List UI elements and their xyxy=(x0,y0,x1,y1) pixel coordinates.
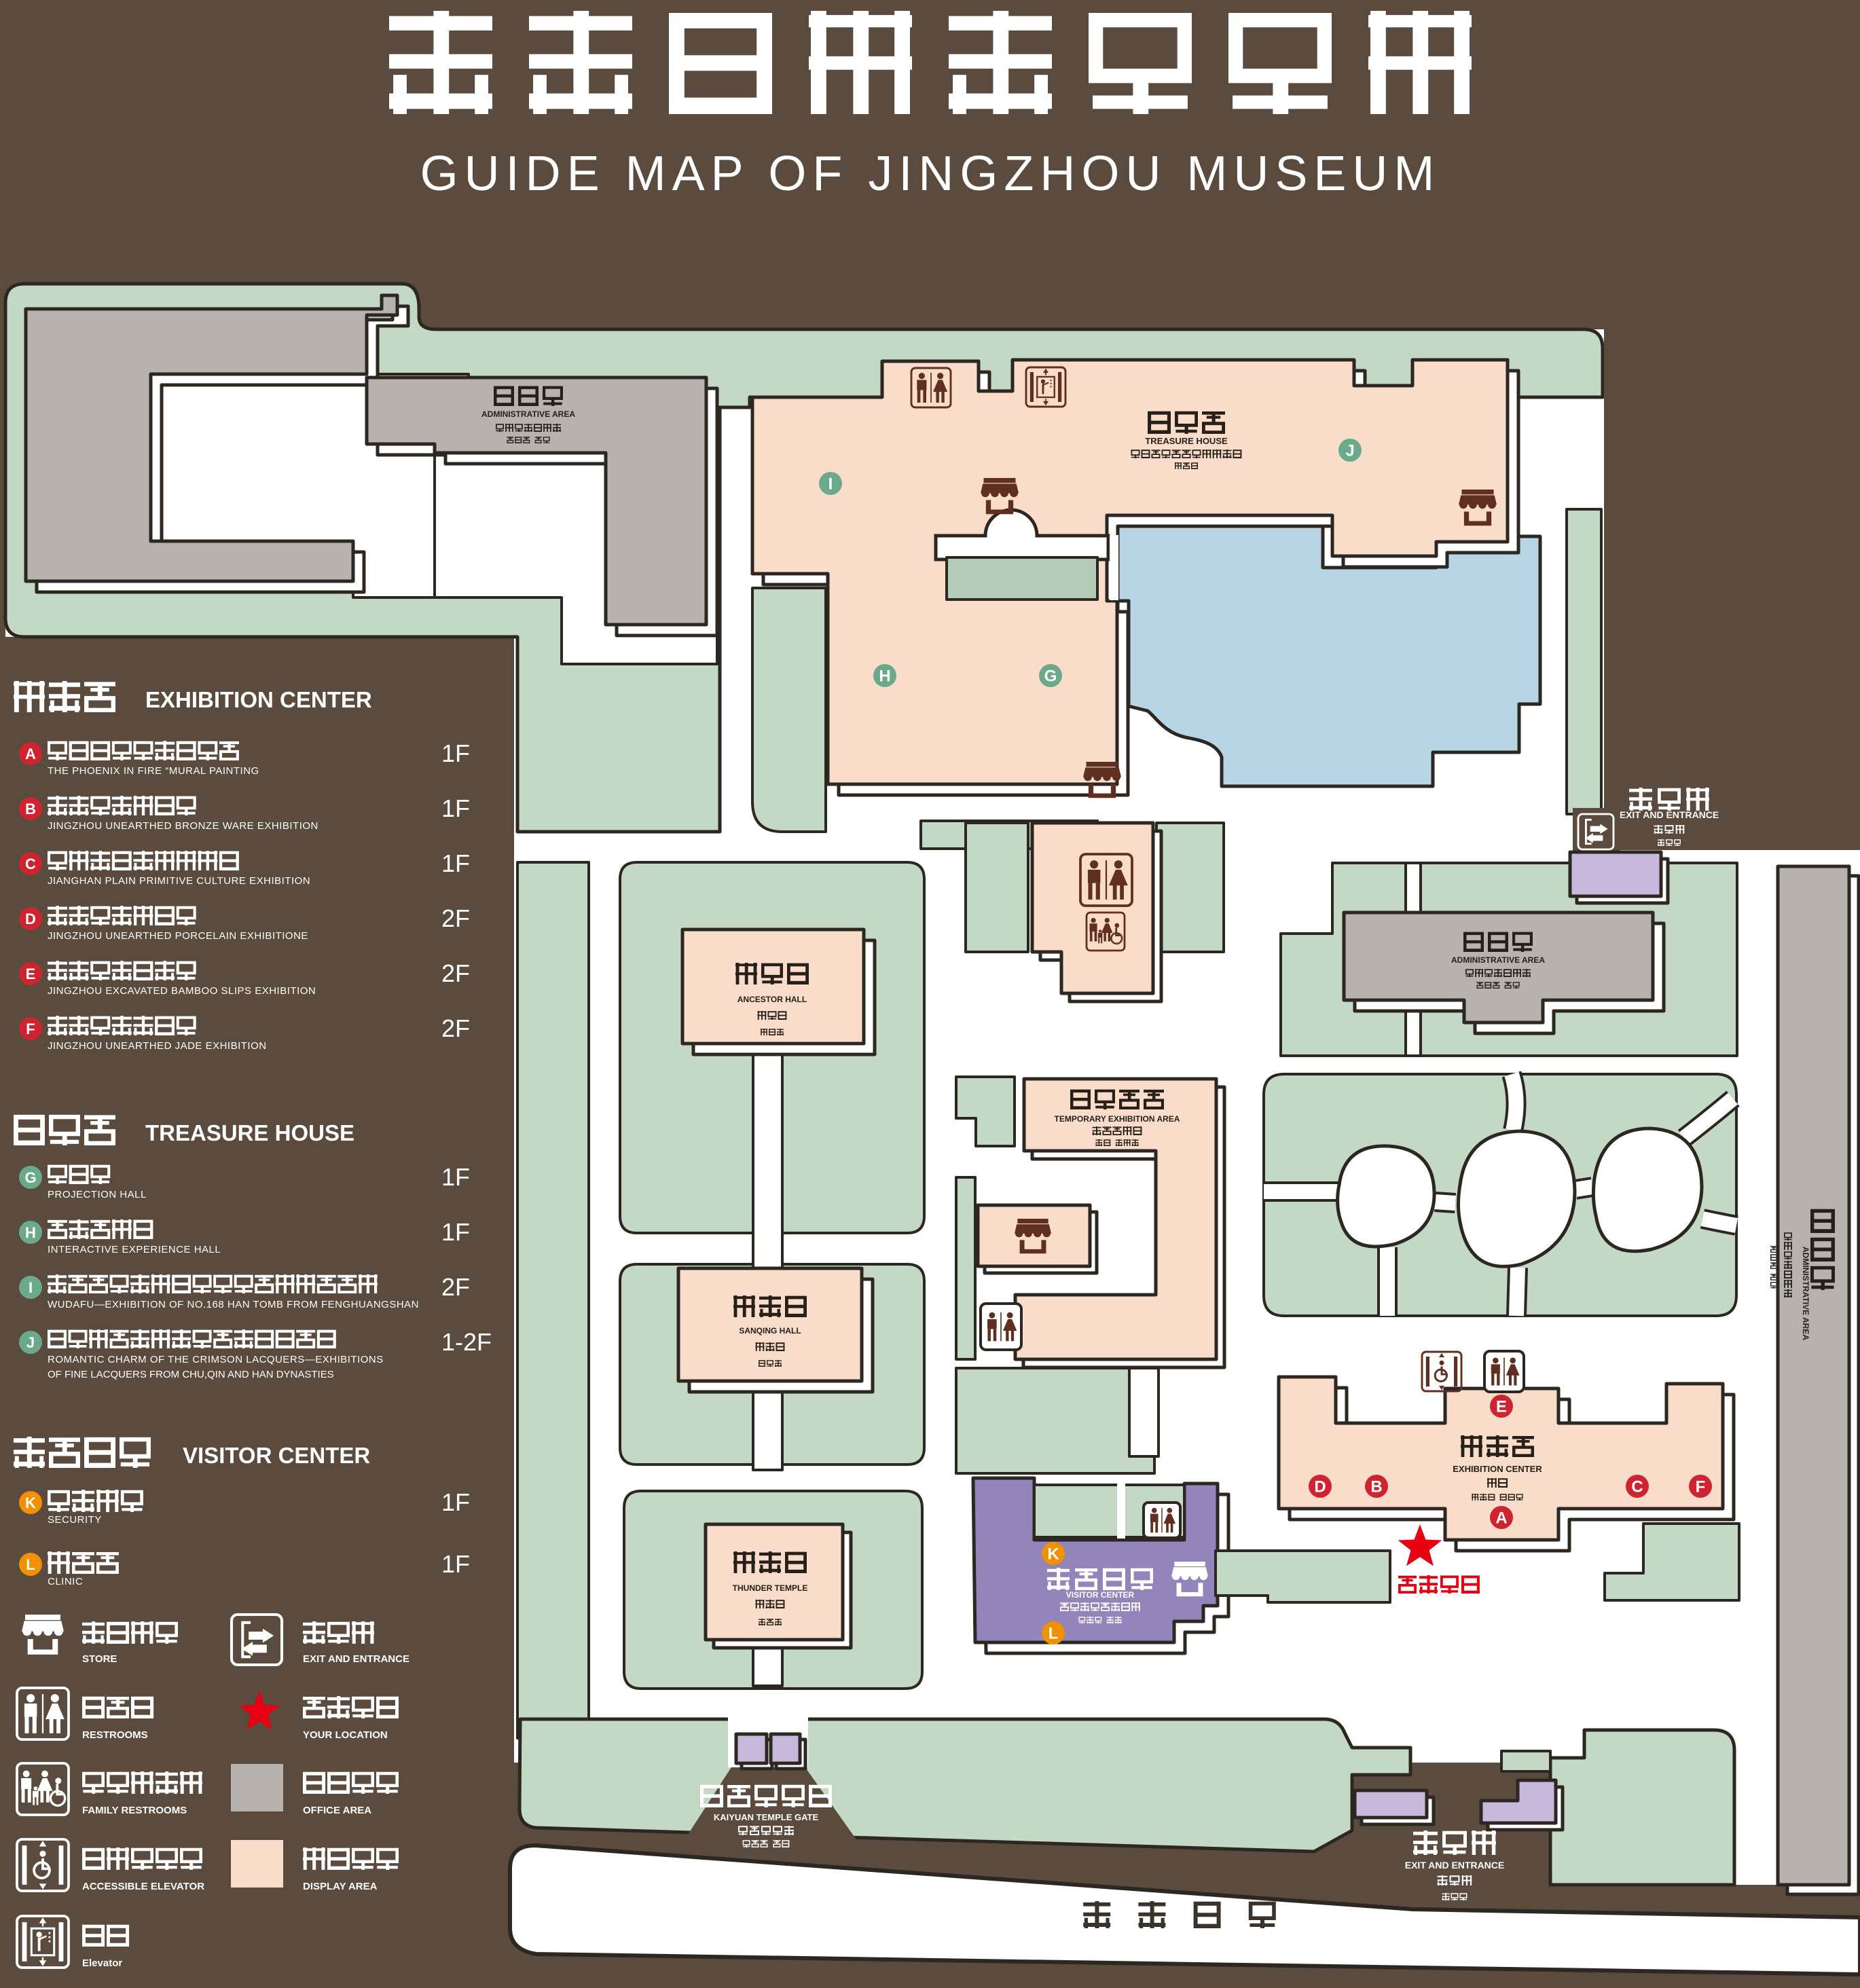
svg-text:1F: 1F xyxy=(441,1163,470,1191)
svg-text:H: H xyxy=(25,1224,36,1241)
svg-text:JINGZHOU EXCAVATED BAMBOO SLIP: JINGZHOU EXCAVATED BAMBOO SLIPS EXHIBITI… xyxy=(48,985,316,997)
svg-text:THUNDER TEMPLE: THUNDER TEMPLE xyxy=(733,1583,808,1593)
svg-text:JINGZHOU UNEARTHED BRONZE WARE: JINGZHOU UNEARTHED BRONZE WARE EXHIBITIO… xyxy=(48,820,318,832)
svg-text:1F: 1F xyxy=(441,794,470,822)
svg-text:J: J xyxy=(26,1334,35,1351)
svg-text:TREASURE HOUSE: TREASURE HOUSE xyxy=(1145,436,1228,446)
svg-text:D: D xyxy=(25,910,36,927)
svg-text:1F: 1F xyxy=(441,1218,470,1246)
svg-text:1F: 1F xyxy=(441,739,470,767)
svg-text:I: I xyxy=(828,475,833,494)
svg-text:DISPLAY AREA: DISPLAY AREA xyxy=(303,1881,378,1892)
svg-text:G: G xyxy=(24,1169,36,1186)
svg-text:EXIT AND ENTRANCE: EXIT AND ENTRANCE xyxy=(303,1653,409,1665)
svg-text:VISITOR CENTER: VISITOR CENTER xyxy=(183,1443,370,1468)
svg-text:E: E xyxy=(1496,1398,1507,1416)
svg-text:SANQING HALL: SANQING HALL xyxy=(739,1326,801,1336)
svg-text:F: F xyxy=(26,1020,35,1037)
svg-text:L: L xyxy=(1048,1625,1059,1643)
svg-text:ADMINISTRATIVE AREA: ADMINISTRATIVE AREA xyxy=(481,409,575,419)
svg-text:2F: 2F xyxy=(441,1014,470,1042)
svg-text:WUDAFU—EXHIBITION OF NO.168 HA: WUDAFU—EXHIBITION OF NO.168 HAN TOMB FRO… xyxy=(48,1299,419,1310)
svg-text:F: F xyxy=(1696,1478,1706,1496)
svg-text:H: H xyxy=(879,667,890,686)
svg-text:EXHIBITION CENTER: EXHIBITION CENTER xyxy=(145,687,372,712)
svg-text:ANCESTOR HALL: ANCESTOR HALL xyxy=(737,995,807,1004)
svg-text:RESTROOMS: RESTROOMS xyxy=(82,1729,148,1741)
svg-text:K: K xyxy=(25,1494,36,1511)
svg-text:K: K xyxy=(1047,1545,1059,1564)
svg-text:THE PHOENIX IN FIRE “MURAL PAI: THE PHOENIX IN FIRE “MURAL PAINTING xyxy=(48,765,259,777)
svg-text:OF FINE LACQUERS FROM CHU,QIN: OF FINE LACQUERS FROM CHU,QIN AND HAN DY… xyxy=(48,1369,334,1380)
svg-text:2F: 2F xyxy=(441,904,470,932)
svg-text:GUIDE MAP OF JINGZHOU MUSEUM: GUIDE MAP OF JINGZHOU MUSEUM xyxy=(420,147,1441,201)
svg-text:ADMINISTRATIVE AREA: ADMINISTRATIVE AREA xyxy=(1451,955,1545,965)
svg-text:1-2F: 1-2F xyxy=(441,1328,492,1356)
svg-text:STORE: STORE xyxy=(82,1653,117,1665)
svg-text:JIANGHAN PLAIN PRIMITIVE CULTU: JIANGHAN PLAIN PRIMITIVE CULTURE EXHIBIT… xyxy=(48,875,310,887)
svg-text:INTERACTIVE EXPERIENCE HALL: INTERACTIVE EXPERIENCE HALL xyxy=(48,1244,221,1255)
svg-text:OFFICE AREA: OFFICE AREA xyxy=(303,1805,371,1816)
svg-text:C: C xyxy=(1631,1478,1643,1496)
svg-text:1F: 1F xyxy=(441,1550,470,1578)
svg-text:B: B xyxy=(1370,1478,1382,1496)
svg-text:1F: 1F xyxy=(441,1488,470,1516)
svg-text:JINGZHOU UNEARTHED PORCELAIN E: JINGZHOU UNEARTHED PORCELAIN EXHIBITIONE xyxy=(48,930,308,942)
svg-text:FAMILY RESTROOMS: FAMILY RESTROOMS xyxy=(82,1805,187,1816)
svg-text:TEMPORARY EXHIBITION AREA: TEMPORARY EXHIBITION AREA xyxy=(1055,1114,1180,1124)
svg-text:A: A xyxy=(25,745,36,762)
svg-text:G: G xyxy=(1044,667,1057,686)
svg-text:CLINIC: CLINIC xyxy=(48,1576,83,1587)
svg-text:YOUR LOCATION: YOUR LOCATION xyxy=(303,1729,388,1741)
svg-text:2F: 2F xyxy=(441,959,470,987)
svg-text:ROMANTIC CHARM OF THE CRIMSON: ROMANTIC CHARM OF THE CRIMSON LACQUERS—E… xyxy=(48,1354,384,1365)
svg-text:2F: 2F xyxy=(441,1273,470,1301)
svg-text:VISITOR CENTER: VISITOR CENTER xyxy=(1066,1590,1135,1600)
svg-text:C: C xyxy=(25,855,36,872)
svg-text:B: B xyxy=(25,800,36,817)
svg-text:JINGZHOU UNEARTHED JADE EXHIBI: JINGZHOU UNEARTHED JADE EXHIBITION xyxy=(48,1040,267,1052)
svg-text:PROJECTION HALL: PROJECTION HALL xyxy=(48,1189,147,1200)
svg-text:TREASURE HOUSE: TREASURE HOUSE xyxy=(145,1120,354,1145)
svg-text:L: L xyxy=(26,1556,35,1573)
svg-text:KAIYUAN TEMPLE GATE: KAIYUAN TEMPLE GATE xyxy=(714,1812,819,1822)
svg-text:I: I xyxy=(29,1279,33,1296)
svg-text:A: A xyxy=(1495,1509,1507,1528)
svg-text:ACCESSIBLE ELEVATOR: ACCESSIBLE ELEVATOR xyxy=(82,1881,204,1892)
svg-text:EXIT AND ENTRANCE: EXIT AND ENTRANCE xyxy=(1620,809,1719,820)
svg-text:1F: 1F xyxy=(441,849,470,877)
svg-text:J: J xyxy=(1345,442,1354,460)
svg-text:Elevator: Elevator xyxy=(82,1957,122,1969)
svg-text:EXHIBITION CENTER: EXHIBITION CENTER xyxy=(1453,1464,1542,1474)
svg-text:D: D xyxy=(1314,1478,1326,1496)
svg-text:ADMINISTRATIVE AREA: ADMINISTRATIVE AREA xyxy=(1801,1247,1810,1340)
svg-text:E: E xyxy=(26,965,36,982)
svg-text:SECURITY: SECURITY xyxy=(48,1514,102,1526)
svg-text:EXIT AND ENTRANCE: EXIT AND ENTRANCE xyxy=(1405,1860,1505,1871)
